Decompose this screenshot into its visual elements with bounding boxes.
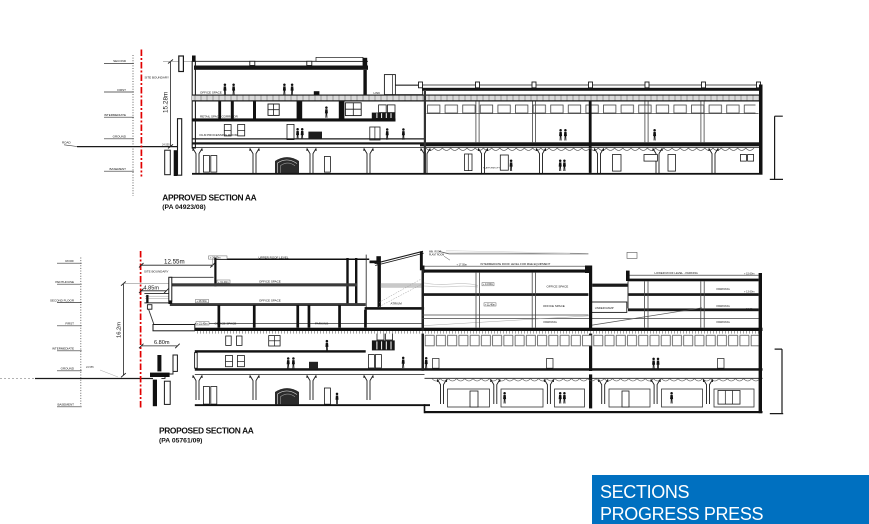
- svg-text:16.2m: 16.2m: [117, 322, 123, 338]
- svg-text:PARKING: PARKING: [717, 287, 731, 291]
- svg-text:+ 13.60m: + 13.60m: [744, 291, 755, 294]
- svg-text:PROPOSED SECTION AA: PROPOSED SECTION AA: [159, 425, 254, 435]
- svg-text:OFFICE SPACE: OFFICE SPACE: [200, 91, 222, 95]
- svg-text:+ 11.40m: + 11.40m: [485, 303, 495, 306]
- svg-text:FILM PROCESSING ROOM: FILM PROCESSING ROOM: [200, 133, 238, 137]
- svg-text:ROOF: ROOF: [65, 259, 74, 263]
- svg-text:15.28m: 15.28m: [163, 92, 170, 113]
- svg-text:ROAD: ROAD: [62, 141, 72, 145]
- svg-text:SECOND: SECOND: [113, 59, 127, 63]
- svg-text:APPROVED SECTION AA: APPROVED SECTION AA: [162, 192, 256, 202]
- svg-text:ATRIUM: ATRIUM: [391, 301, 403, 305]
- svg-text:CORRIDOR: CORRIDOR: [222, 114, 239, 118]
- svg-text:PARKING: PARKING: [717, 304, 731, 308]
- svg-text:BASEMENT: BASEMENT: [57, 403, 74, 407]
- svg-text:+ 28.30m: + 28.30m: [197, 300, 208, 303]
- svg-text:PLATFORM LIFT: PLATFORM LIFT: [483, 167, 501, 170]
- svg-text:SITE BOUNDARY: SITE BOUNDARY: [144, 269, 168, 273]
- svg-text:PENTHOUSE: PENTHOUSE: [55, 280, 74, 284]
- svg-text:UPPER ROOF LEVEL: UPPER ROOF LEVEL: [259, 255, 289, 259]
- svg-text:24.555: 24.555: [162, 143, 170, 146]
- svg-text:OFFICE SPACE: OFFICE SPACE: [543, 304, 565, 308]
- svg-text:OFFICE SPACE: OFFICE SPACE: [259, 299, 281, 303]
- svg-text:PARKING: PARKING: [544, 320, 558, 324]
- svg-text:OFFICE SPACE: OFFICE SPACE: [259, 280, 281, 284]
- svg-text:24.555: 24.555: [86, 366, 94, 369]
- svg-text:SITE BOUNDARY: SITE BOUNDARY: [145, 76, 169, 80]
- svg-text:GROUND: GROUND: [113, 135, 127, 139]
- svg-text:(PA 04923/08): (PA 04923/08): [162, 204, 205, 211]
- svg-text:BASEMENT: BASEMENT: [109, 167, 126, 171]
- svg-text:GROUND: GROUND: [61, 367, 75, 371]
- svg-text:FIRST: FIRST: [65, 322, 74, 326]
- svg-text:PARKING: PARKING: [717, 320, 731, 324]
- svg-text:INTERMEDIATE: INTERMEDIATE: [104, 113, 126, 117]
- svg-text:4.85m: 4.85m: [144, 286, 160, 292]
- svg-text:INTERMEDIATE: INTERMEDIATE: [52, 347, 74, 351]
- svg-text:6.80m: 6.80m: [154, 340, 170, 346]
- svg-text:RETAIL SPACE: RETAIL SPACE: [200, 114, 221, 118]
- svg-text:+ 14.60m: + 14.60m: [483, 283, 493, 286]
- svg-text:LINK: LINK: [374, 91, 381, 95]
- svg-text:MIN. ROOF: MIN. ROOF: [429, 252, 442, 254]
- svg-text:PLANT ROOM: PLANT ROOM: [429, 253, 444, 256]
- svg-text:PARKING: PARKING: [315, 321, 329, 325]
- svg-text:12.55m: 12.55m: [164, 258, 185, 265]
- svg-text:(PA 05761/09): (PA 05761/09): [159, 437, 202, 444]
- svg-text:SECOND FLOOR: SECOND FLOOR: [50, 298, 75, 302]
- svg-text:LOWER ROOF LEVEL - PARKING: LOWER ROOF LEVEL - PARKING: [655, 271, 698, 275]
- svg-text:UNDER RAMP: UNDER RAMP: [595, 306, 614, 310]
- svg-text:INTERMEDIATE ROOF LEVEL FOR M&: INTERMEDIATE ROOF LEVEL FOR M&E EQUIPMEN…: [481, 262, 551, 266]
- svg-text:OFFICE SPACE: OFFICE SPACE: [547, 284, 569, 288]
- svg-text:FIRST: FIRST: [117, 88, 126, 92]
- svg-text:+ 21.45m: + 21.45m: [197, 322, 208, 325]
